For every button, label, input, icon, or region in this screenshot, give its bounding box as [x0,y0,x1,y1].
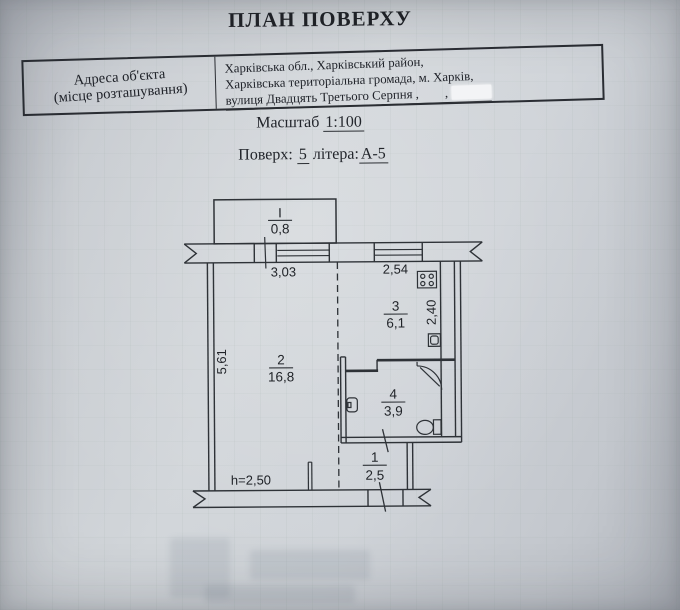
letter-label: літера: [313,146,359,163]
window-kitchen [374,249,422,255]
dim-room2-depth: 5,61 [214,349,229,374]
floor-plan-drawing: I 0,8 2 16,8 3 6,1 4 3,9 1 2,5 3 [167,189,503,521]
dim-ceiling-height: h=2,50 [231,472,271,487]
kitchen-number: 3 [392,299,400,314]
left-wall [207,263,215,491]
corridor-wall [407,442,413,489]
address-table: Адреса об'єкта (місце розташування) Харк… [21,44,604,116]
address-tail-comma: , [445,86,449,100]
wall-break-mark [184,244,196,263]
wall-stub [308,462,312,490]
stove-icon [417,271,436,288]
corridor-number: 1 [371,450,379,465]
balcony-area: 0,8 [271,221,290,236]
bathroom-walls [341,356,462,443]
floor-value: 5 [297,146,309,164]
room2-area: 16,8 [268,369,294,384]
address-label-cell: Адреса об'єкта (місце розташування) [23,57,216,114]
letter-value: А-5 [359,145,388,163]
balcony-door-mark [265,237,266,269]
bathroom-number: 4 [389,387,397,402]
bathroom-door-mark [383,429,389,452]
dim-kitchen-width: 2,54 [383,261,408,276]
wall-break-mark [193,491,205,508]
top-wall [184,242,482,263]
balcony-number: I [278,205,282,220]
kitchen-label: 3 6,1 [384,298,408,330]
shower-icon [417,362,442,390]
bleedthrough-smudge [205,585,355,603]
toilet-icon [417,420,441,435]
scanned-floor-plan-page: ПЛАН ПОВЕРХУ Адреса об'єкта (місце розта… [0,0,680,610]
scale-value: 1:100 [323,114,364,132]
dim-room2-width: 3,03 [271,264,296,279]
bleedthrough-smudge [250,550,370,580]
bathroom-label: 4 3,9 [381,387,405,419]
page-title: ПЛАН ПОВЕРХУ [228,6,412,33]
bottom-wall [193,489,431,507]
corridor-label: 1 2,5 [363,450,387,483]
floor-label: Поверх: [238,146,293,163]
right-wall [440,261,461,442]
dashed-partition [337,262,339,490]
dim-kitchen-depth: 2,40 [424,300,439,325]
address-value-cell: Харківська обл., Харківський район, Харк… [215,45,603,110]
balcony-label: I 0,8 [268,205,292,236]
scale-line: Масштаб 1:100 [256,114,364,133]
entrance-door-mark [379,482,385,512]
bathroom-area: 3,9 [384,404,403,419]
floor-line: Поверх: 5 літера:А-5 [238,145,388,164]
kitchen-sink-icon [428,334,440,347]
room2-number: 2 [277,352,285,367]
scale-label: Масштаб [256,114,319,132]
window-room2 [277,250,329,256]
room2-label: 2 16,8 [268,352,295,384]
corridor-area: 2,5 [365,468,384,483]
kitchen-area: 6,1 [386,316,405,331]
wall-break-mark [419,489,431,506]
washbasin-icon [347,398,358,412]
wall-break-mark [470,242,482,261]
redacted-house-number [452,85,492,100]
